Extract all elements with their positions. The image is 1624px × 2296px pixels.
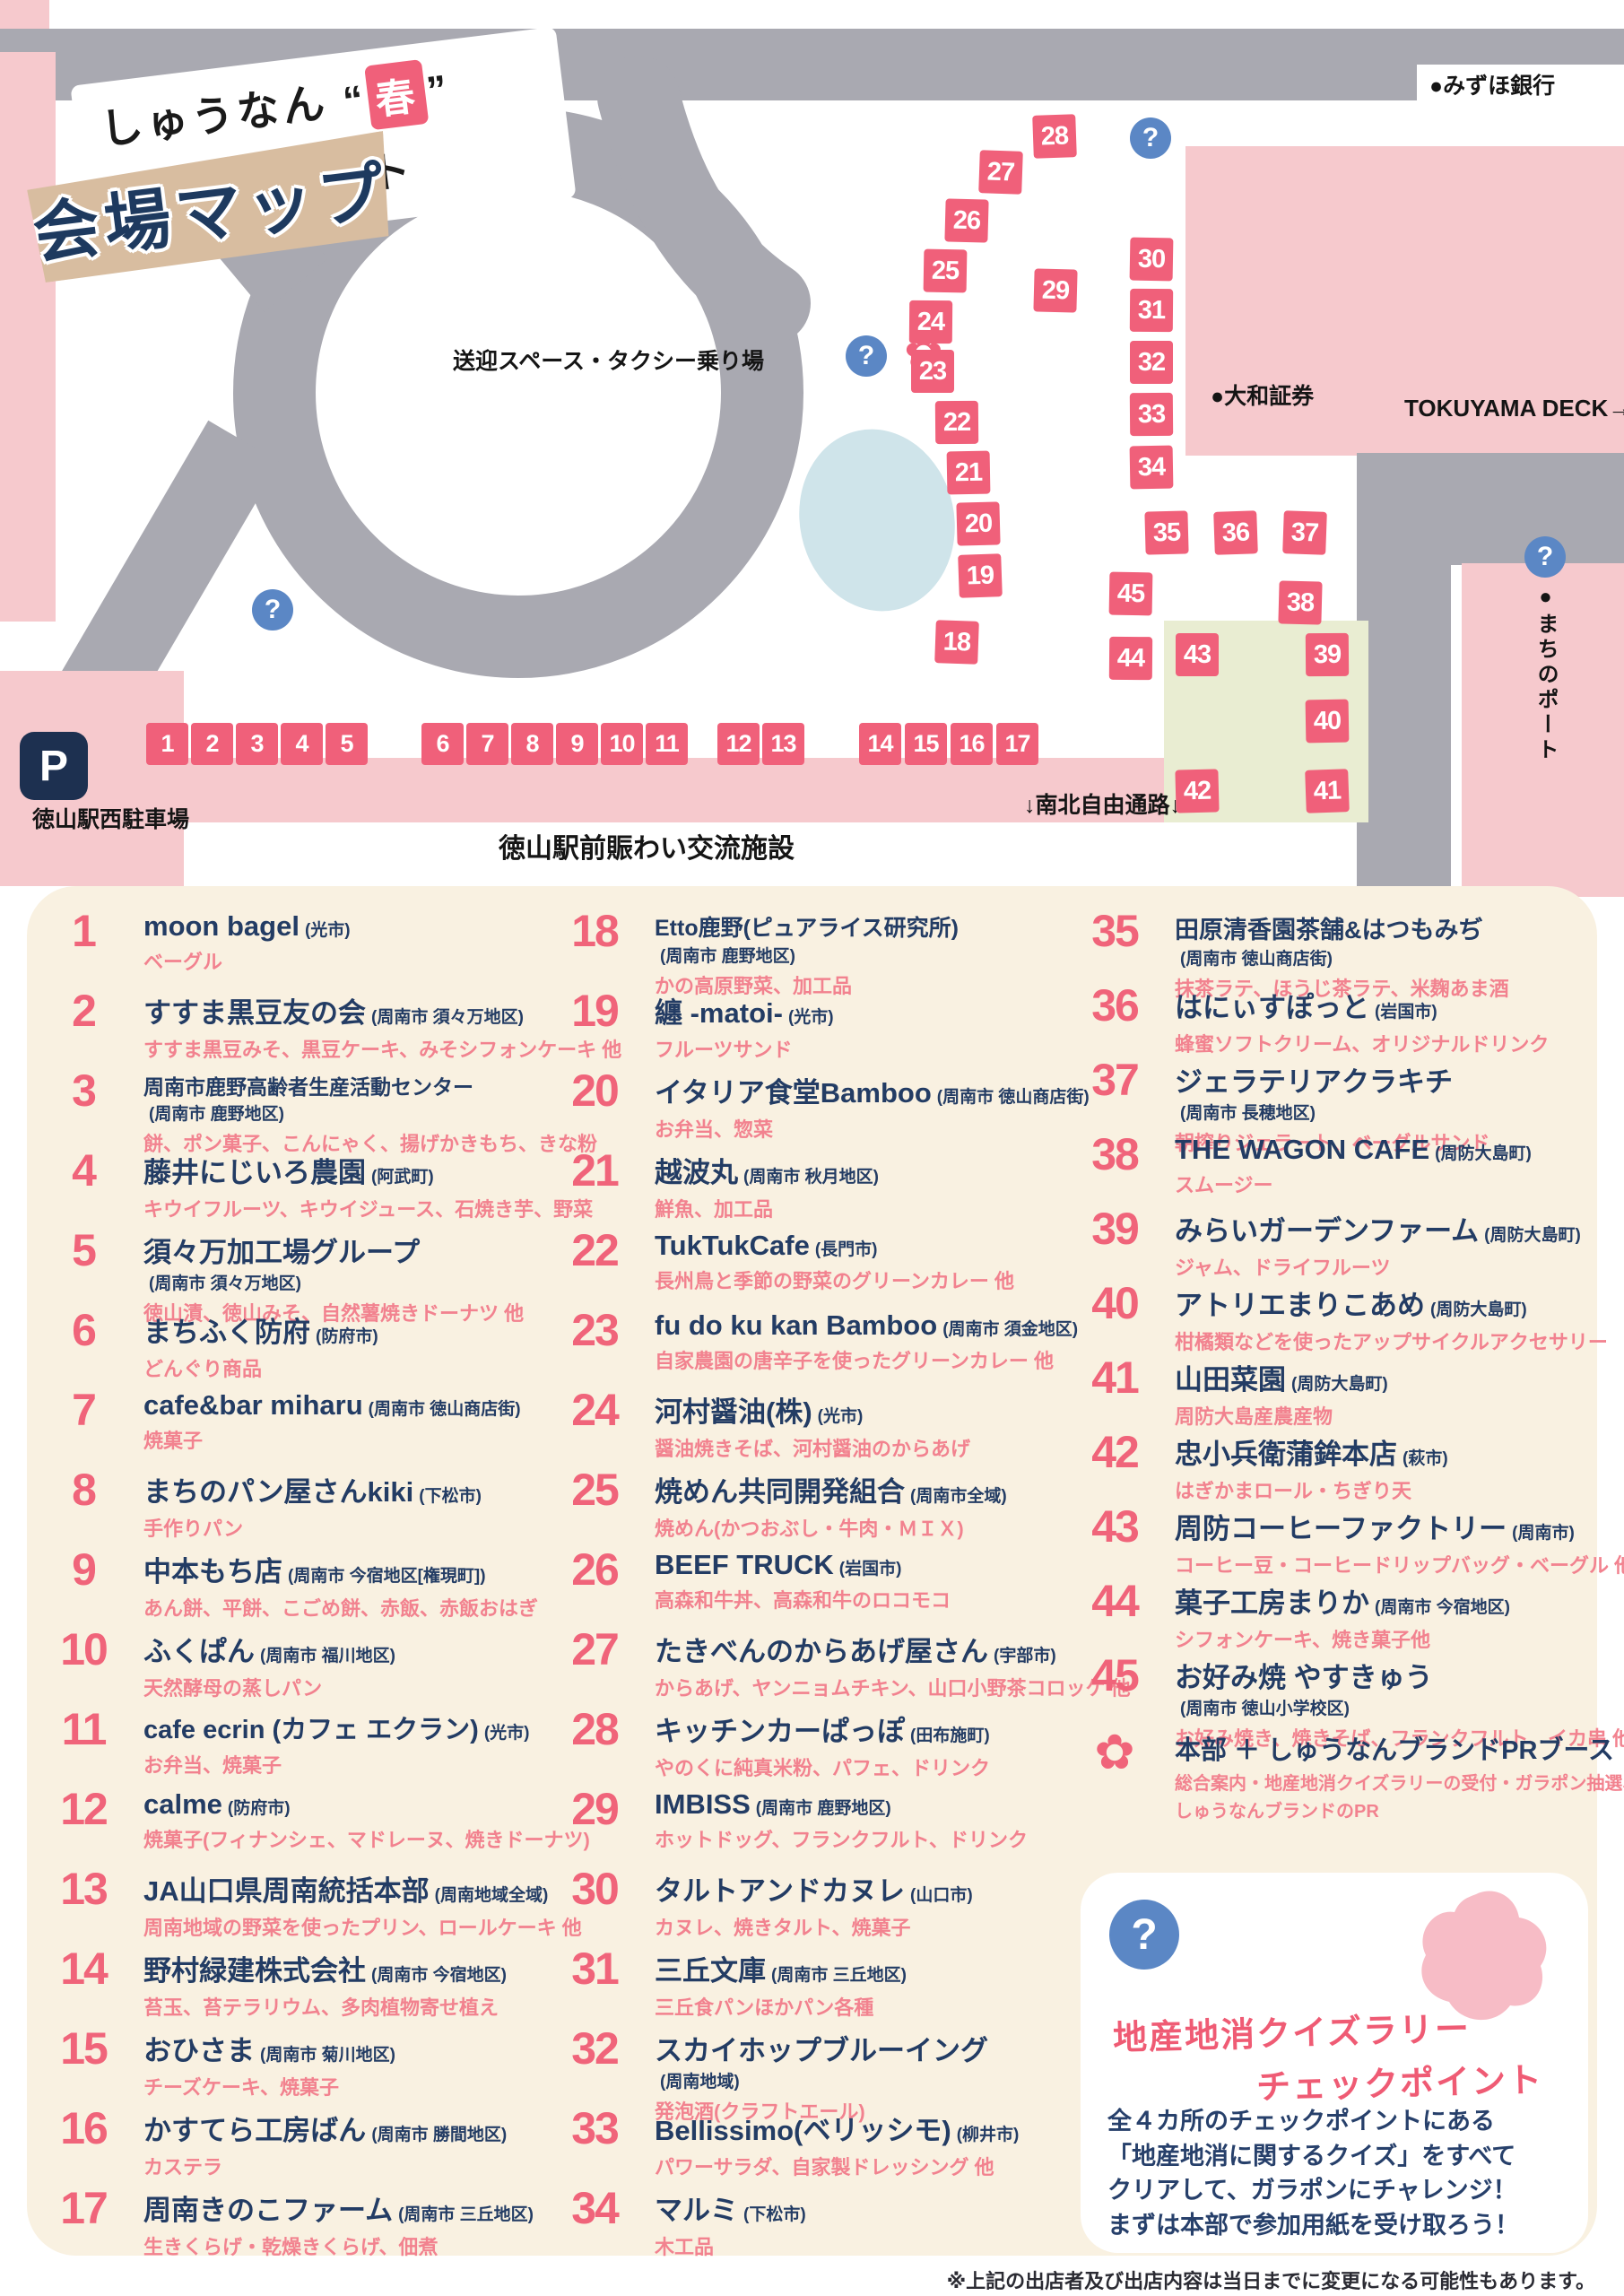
map-badge-44: 44 <box>1109 637 1152 680</box>
vendor-title: スカイホップブルーイング <box>655 2035 988 2066</box>
quiz-body-line: クリアして、ガラポンにチャレンジ！ <box>1107 2173 1519 2208</box>
vendor-number: 6 <box>40 1304 126 1356</box>
title-haru: 春 <box>364 59 429 130</box>
vendor-title: お好み焼 やすきゅう <box>1175 1662 1433 1693</box>
map-badge-30: 30 <box>1130 238 1174 282</box>
vendor-items: シフォンケーキ、焼き菓子他 <box>1175 1624 1592 1653</box>
vendor-entry-24: 24河村醤油(株)(光市)醤油焼きそば、河村醤油のからあげ <box>551 1389 1072 1462</box>
parking-icon: P <box>20 732 88 800</box>
vendor-items: カステラ <box>143 2152 560 2180</box>
vendor-location: (周南市 長穂地区) <box>1180 1104 1316 1123</box>
quote-close: ” <box>424 67 453 114</box>
vendor-location: (周南市 須々万地区) <box>149 1274 301 1293</box>
vendor-title: 山田菜園 <box>1175 1364 1286 1396</box>
vendor-location: (周南市 須々万地区) <box>371 1008 524 1027</box>
vendor-title: おひさま <box>143 2035 255 2066</box>
map-badge-33: 33 <box>1130 393 1173 436</box>
map-badge-22: 22 <box>935 401 978 444</box>
vendor-location: (柳井市) <box>957 2126 1020 2144</box>
booth-badge-6: 6 <box>421 723 464 765</box>
vendor-number: 31 <box>551 1943 638 1995</box>
vendor-title: BEEF TRUCK <box>655 1549 834 1580</box>
map-badge-25: 25 <box>924 249 968 293</box>
vendor-entry-43: 43周防コーヒーファクトリー(周南市)コーヒー豆・コーヒードリップバッグ・ベーグ… <box>1072 1506 1592 1578</box>
vendor-title: JA山口県周南統括本部 <box>143 1875 430 1907</box>
vendor-location: (周南市 三丘地区) <box>398 2205 534 2224</box>
vendor-entry-1: 1moon bagel(光市)ベーグル <box>40 910 560 975</box>
vendor-title: THE WAGON CAFE <box>1175 1134 1429 1165</box>
vendor-entry-2: 2すすま黒豆友の会(周南市 須々万地区)すすま黒豆みそ、黒豆ケーキ、みそシフォン… <box>40 990 560 1063</box>
vendor-entry-17: 17周南きのこファーム(周南市 三丘地区)生きくらげ・乾燥きくらげ、佃煮 <box>40 2187 560 2260</box>
vendor-number: 30 <box>551 1863 638 1915</box>
booth-badge-11: 11 <box>646 723 688 765</box>
map-badge-34: 34 <box>1130 446 1174 490</box>
vendor-items: カヌレ、焼きタルト、焼菓子 <box>655 1912 1072 1941</box>
vendor-number: 21 <box>551 1144 638 1196</box>
booth-badge-8: 8 <box>511 723 553 765</box>
map-badge-42: 42 <box>1175 769 1219 813</box>
vendor-location: (光市) <box>484 1724 530 1743</box>
quiz-body: 全４カ所のチェックポイントにある 「地産地消に関するクイズ」をすべて クリアして… <box>1107 2104 1519 2242</box>
vendor-number: 39 <box>1072 1203 1158 1255</box>
vendor-items: あん餅、平餅、こごめ餅、赤飯、赤飯おはぎ <box>143 1593 560 1622</box>
vendor-items: 総合案内・地産地消クイズラリーの受付・ガラポン抽選、 <box>1175 1769 1592 1795</box>
vendor-items: 焼菓子 <box>143 1425 560 1454</box>
vendor-number: 29 <box>551 1783 638 1835</box>
vendor-location: (周南市 鹿野地区) <box>149 1105 284 1124</box>
booth-badge-16: 16 <box>951 723 993 765</box>
vendor-location: (周南市 徳山商店街) <box>369 1400 521 1419</box>
vendor-entry-14: 14野村緑建株式会社(周南市 今宿地区)苔玉、苔テラリウム、多肉植物寄せ植え <box>40 1948 560 2021</box>
vendor-items: やのくに純真米粉、パフェ、ドリンク <box>655 1752 1072 1781</box>
label-west-parking: 徳山駅西駐車場 <box>32 802 189 834</box>
vendor-title: アトリエまりこあめ <box>1175 1290 1425 1321</box>
vendor-items: スムージー <box>1175 1170 1592 1198</box>
map-badge-19: 19 <box>958 553 1003 598</box>
vendor-items: 蜂蜜ソフトクリーム、オリジナルドリンク <box>1175 1029 1592 1057</box>
vendor-location: (周南市 秋月地区) <box>743 1168 879 1187</box>
booth-badge-12: 12 <box>717 723 760 765</box>
vendor-entry-21: 21越波丸(周南市 秋月地区)鮮魚、加工品 <box>551 1150 1072 1222</box>
vendor-entry-42: 42忠小兵衛蒲鉾本店(萩市)はぎかまロール・ちぎり天 <box>1072 1431 1592 1504</box>
label-machi-port: ●まちのポート <box>1530 585 1561 881</box>
vendor-title: Bellissimo(ベリッシモ) <box>655 2115 951 2146</box>
vendor-title: fu do ku kan Bamboo <box>655 1309 937 1341</box>
vendor-number: 32 <box>551 2022 638 2074</box>
vendor-title: まちふく防府 <box>143 1317 310 1348</box>
vendor-entry-4: 4藤井にじいろ農園(阿武町)キウイフルーツ、キウイジュース、石焼き芋、野菜 <box>40 1150 560 1222</box>
vendor-number: 40 <box>1072 1277 1158 1329</box>
booth-badge-2: 2 <box>191 723 233 765</box>
vendor-items: 高森和牛丼、高森和牛のロコモコ <box>655 1585 1072 1613</box>
vendor-title: 野村緑建株式会社 <box>143 1955 366 1987</box>
vendor-location: (周南市 徳山商店街) <box>1180 950 1333 969</box>
quiz-checkpoint-box: ? 地産地消クイズラリー チェックポイント 全４カ所のチェックポイントにある 「… <box>1081 1873 1588 2253</box>
vendor-location: (周南市 菊川地区) <box>260 2046 395 2065</box>
map-badge-35: 35 <box>1144 510 1188 554</box>
vendor-number: 42 <box>1072 1426 1158 1478</box>
vendor-location: (周南市 三丘地区) <box>771 1966 907 1985</box>
vendor-title: すすま黒豆友の会 <box>143 997 366 1029</box>
vendor-location: (周南地域全域) <box>435 1886 549 1905</box>
vendor-items: チーズケーキ、焼菓子 <box>143 2072 560 2100</box>
vendor-items: ホットドッグ、フランクフルト、ドリンク <box>655 1824 1072 1853</box>
vendor-items: 手作りパン <box>143 1513 560 1542</box>
vendor-entry-28: 28キッチンカーぱっぽ(田布施町)やのくに純真米粉、パフェ、ドリンク <box>551 1709 1072 1781</box>
vendor-items: 鮮魚、加工品 <box>655 1194 1072 1222</box>
label-tokuyama-deck: TOKUYAMA DECK→ <box>1404 395 1624 422</box>
vendor-items: すすま黒豆みそ、黒豆ケーキ、みそシフォンケーキ 他 <box>143 1034 560 1063</box>
vendor-entry-38: 38THE WAGON CAFE(周防大島町)スムージー <box>1072 1134 1592 1198</box>
vendor-items: はぎかまロール・ちぎり天 <box>1175 1475 1592 1504</box>
vendor-title: イタリア食堂Bamboo <box>655 1077 932 1109</box>
vendor-location: (長門市) <box>815 1240 878 1259</box>
vendor-number: 3 <box>40 1065 126 1117</box>
pink-corner <box>0 0 49 32</box>
vendor-entry-7: 7cafe&bar miharu(周南市 徳山商店街)焼菓子 <box>40 1389 560 1454</box>
vendor-location: (周南市 徳山小学校区) <box>1180 1700 1350 1718</box>
booth-badge-4: 4 <box>281 723 323 765</box>
vendor-items: パワーサラダ、自家製ドレッシング 他 <box>655 2152 1072 2180</box>
checkpoint-icon-machiport: ? <box>1524 536 1566 578</box>
quiz-body-line: 「地産地消に関するクイズ」をすべて <box>1107 2139 1519 2174</box>
quiz-body-line: 全４カ所のチェックポイントにある <box>1107 2104 1519 2139</box>
vendor-title: moon bagel <box>143 910 300 942</box>
map-badge-37: 37 <box>1282 510 1327 555</box>
vendor-entry-27: 27たきべんのからあげ屋さん(宇部市)からあげ、ヤンニョムチキン、山口小野茶コロ… <box>551 1629 1072 1701</box>
vendor-number: 9 <box>40 1544 126 1596</box>
vendor-items: 焼めん(かつおぶし・牛肉・ＭＩＸ) <box>655 1513 1072 1542</box>
vendor-location: (周南市 須金地区) <box>942 1320 1078 1339</box>
vendor-location: (周南市 今宿地区) <box>371 1966 507 1985</box>
vendor-number: 11 <box>40 1703 126 1755</box>
map-badge-18: 18 <box>934 620 979 665</box>
vendor-number: 44 <box>1072 1575 1158 1627</box>
vendor-entry-33: 33Bellissimo(ベリッシモ)(柳井市)パワーサラダ、自家製ドレッシング… <box>551 2108 1072 2180</box>
vendor-items: お弁当、焼菓子 <box>143 1750 560 1779</box>
map-badge-27: 27 <box>978 150 1023 195</box>
map-badge-28: 28 <box>1032 114 1077 159</box>
vendor-number: 10 <box>40 1623 126 1675</box>
vendor-location: (周防大島町) <box>1484 1226 1581 1245</box>
vendor-location: (防府市) <box>228 1799 291 1818</box>
vendor-location: (周南市全域) <box>910 1487 1007 1506</box>
vendor-number: 45 <box>1072 1649 1158 1701</box>
vendor-items: キウイフルーツ、キウイジュース、石焼き芋、野菜 <box>143 1194 560 1222</box>
vendor-items: 木工品 <box>655 2231 1072 2260</box>
vendor-number: 16 <box>40 2102 126 2154</box>
label-daiwa-securities: ●大和証券 <box>1211 378 1314 411</box>
vendor-title: まちのパン屋さんkiki <box>143 1476 413 1508</box>
vendor-entry-36: 36はにぃすぽっと(岩国市)蜂蜜ソフトクリーム、オリジナルドリンク <box>1072 985 1592 1057</box>
vendor-entry-6: 6まちふく防府(防府市)どんぐり商品 <box>40 1309 560 1382</box>
label-passage: ↓南北自由通路↓ <box>1024 787 1181 820</box>
vendor-location: (周防大島町) <box>1430 1300 1527 1319</box>
vendor-items: 三丘食パンほかパン各種 <box>655 1992 1072 2021</box>
vendor-items: 焼菓子(フィナンシェ、マドレーヌ、焼きドーナツ) <box>143 1824 560 1853</box>
vendor-title: 三丘文庫 <box>655 1955 766 1987</box>
vendor-number: 33 <box>551 2102 638 2154</box>
vendor-location: (宇部市) <box>994 1647 1056 1665</box>
map-badge-20: 20 <box>956 501 1000 545</box>
vendor-entry-pr-booth: ✿本部 ＋ しゅうなんブランドPRブース総合案内・地産地消クイズラリーの受付・ガ… <box>1072 1729 1592 1822</box>
booth-badge-10: 10 <box>601 723 643 765</box>
booth-badge-14: 14 <box>859 723 901 765</box>
vendor-number: 8 <box>40 1464 126 1516</box>
vendor-entry-26: 26BEEF TRUCK(岩国市)高森和牛丼、高森和牛のロコモコ <box>551 1549 1072 1613</box>
vendor-entry-19: 19纏 -matoi-(光市)フルーツサンド <box>551 990 1072 1063</box>
vendor-location: (周南市 徳山商店街) <box>937 1088 1090 1107</box>
vendor-location: (周南市 鹿野地区) <box>756 1799 891 1818</box>
vendor-title: たきべんのからあげ屋さん <box>655 1636 988 1667</box>
quote-open: “ <box>341 77 369 124</box>
vendor-number: 41 <box>1072 1352 1158 1404</box>
vendor-number: 24 <box>551 1384 638 1436</box>
vendor-entry-44: 44菓子工房まりか(周南市 今宿地区)シフォンケーキ、焼き菓子他 <box>1072 1580 1592 1653</box>
booth-badge-15: 15 <box>905 723 947 765</box>
vendor-entry-30: 30タルトアンドカヌレ(山口市)カヌレ、焼きタルト、焼菓子 <box>551 1868 1072 1941</box>
vendor-number: 5 <box>40 1224 126 1276</box>
map-badge-29: 29 <box>1033 268 1077 312</box>
vendor-entry-40: 40アトリエまりこあめ(周防大島町)柑橘類などを使ったアップサイクルアクセサリー <box>1072 1283 1592 1355</box>
vendor-items: 自家農園の唐辛子を使ったグリーンカレー 他 <box>655 1345 1072 1374</box>
vendor-entry-8: 8まちのパン屋さんkiki(下松市)手作りパン <box>40 1469 560 1542</box>
vendor-number: 13 <box>40 1863 126 1915</box>
vendor-title: 纏 -matoi- <box>655 997 783 1029</box>
footer-disclaimer: ※上記の出店者及び出店内容は当日までに変更になる可能性もあります。 <box>947 2266 1595 2294</box>
vendor-items: 天然酵母の蒸しパン <box>143 1673 560 1701</box>
booth-badge-13: 13 <box>762 723 804 765</box>
vendor-location: (萩市) <box>1403 1449 1448 1468</box>
vendor-entry-39: 39みらいガーデンファーム(周防大島町)ジャム、ドライフルーツ <box>1072 1208 1592 1281</box>
booth-badge-7: 7 <box>466 723 508 765</box>
vendor-location: (防府市) <box>316 1327 378 1346</box>
vendor-title: calme <box>143 1788 222 1820</box>
label-station-facility: 徳山駅前賑わい交流施設 <box>499 826 795 865</box>
vendor-title: かすてら工房ばん <box>143 2115 366 2146</box>
vendor-location: (周南市 勝間地区) <box>371 2126 507 2144</box>
map-badge-26: 26 <box>944 198 988 242</box>
vendor-title: 藤井にじいろ農園 <box>143 1157 366 1188</box>
vendor-title: 周南市鹿野高齢者生産活動センター <box>143 1075 473 1099</box>
vendor-entry-34: 34マルミ(下松市)木工品 <box>551 2187 1072 2260</box>
vendor-location: (阿武町) <box>371 1168 434 1187</box>
vendor-title: みらいガーデンファーム <box>1175 1215 1479 1247</box>
vendor-entry-22: 22TukTukCafe(長門市)長州鳥と季節の野菜のグリーンカレー 他 <box>551 1230 1072 1294</box>
vendor-location: (田布施町) <box>910 1726 990 1745</box>
quiz-body-line: まずは本部で参加用紙を受け取ろう！ <box>1107 2208 1519 2243</box>
vendor-number: 18 <box>551 905 638 957</box>
vendor-title: ふくぱん <box>143 1636 255 1667</box>
vendor-location: (周南市 今宿地区) <box>1375 1598 1510 1617</box>
vendor-title: cafe ecrin (カフェ エクラン) <box>143 1716 479 1744</box>
road-right-vertical <box>1357 453 1451 897</box>
vendor-location: (周南市) <box>1512 1524 1575 1543</box>
vendor-title: 須々万加工場グループ <box>143 1237 420 1268</box>
map-badge-43: 43 <box>1176 633 1219 676</box>
vendor-number: 12 <box>40 1783 126 1835</box>
vendor-items: からあげ、ヤンニョムチキン、山口小野茶コロッケ 他 <box>655 1673 1072 1701</box>
map-badge-38: 38 <box>1278 580 1322 624</box>
vendor-title: TukTukCafe <box>655 1230 810 1261</box>
quiz-title-line1: 地産地消クイズラリー <box>1112 2001 1471 2059</box>
vendor-number: 17 <box>40 2182 126 2234</box>
vendor-location: (周南市 鹿野地区) <box>660 947 795 966</box>
map-badge-45: 45 <box>1109 572 1153 616</box>
vendor-entry-16: 16かすてら工房ばん(周南市 勝間地区)カステラ <box>40 2108 560 2180</box>
vendor-location: (周防大島町) <box>1291 1375 1388 1394</box>
vendor-title: 越波丸 <box>655 1157 738 1188</box>
vendor-title: キッチンカーぱっぽ <box>655 1716 905 1747</box>
vendor-items: お弁当、惣菜 <box>655 1114 1072 1143</box>
vendor-number: 14 <box>40 1943 126 1995</box>
map-badge-31: 31 <box>1130 289 1173 332</box>
vendor-location: (光市) <box>818 1407 864 1426</box>
vendor-number: 19 <box>551 985 638 1037</box>
vendor-title: ジェラテリアクラキチ <box>1175 1066 1453 1098</box>
vendor-number: 25 <box>551 1464 638 1516</box>
pr-flower-icon: ✿ <box>1072 1724 1158 1780</box>
checkpoint-icon-north: ? <box>1130 117 1171 159</box>
vendor-location: (光市) <box>305 921 351 940</box>
booth-badge-5: 5 <box>326 723 368 765</box>
map-badge-36: 36 <box>1213 510 1258 555</box>
vendor-entry-13: 13JA山口県周南統括本部(周南地域全域)周南地域の野菜を使ったプリン、ロールケ… <box>40 1868 560 1941</box>
vendor-number: 35 <box>1072 905 1158 957</box>
vendor-location: (下松市) <box>419 1487 482 1506</box>
label-taxi-area: 送迎スペース・タクシー乗り場 <box>453 344 764 376</box>
vendor-number: 2 <box>40 985 126 1037</box>
question-icon: ? <box>1109 1900 1179 1970</box>
vendor-number: 34 <box>551 2182 638 2234</box>
vendor-title: cafe&bar miharu <box>143 1389 363 1421</box>
vendor-title: 中本もち店 <box>143 1556 282 1587</box>
label-mizuho-bank: ●みずほ銀行 <box>1429 68 1555 100</box>
pink-strip-left <box>0 52 56 622</box>
vendor-title: 河村醤油(株) <box>655 1396 812 1428</box>
map-badge-21: 21 <box>947 451 991 495</box>
vendor-number: 28 <box>551 1703 638 1755</box>
vendor-number: 27 <box>551 1623 638 1675</box>
map-badge-32: 32 <box>1130 341 1173 384</box>
checkpoint-icon-west: ? <box>252 589 293 631</box>
vendor-items: 苔玉、苔テラリウム、多肉植物寄せ植え <box>143 1992 560 2021</box>
vendor-number: 23 <box>551 1304 638 1356</box>
vendor-location: (下松市) <box>743 2205 806 2224</box>
vendor-title: 周防コーヒーファクトリー <box>1175 1513 1507 1544</box>
vendor-title: 忠小兵衛蒲鉾本店 <box>1175 1439 1397 1470</box>
pond <box>783 414 972 625</box>
vendor-items: 長州鳥と季節の野菜のグリーンカレー 他 <box>655 1265 1072 1294</box>
vendor-entry-10: 10ふくぱん(周南市 福川地区)天然酵母の蒸しパン <box>40 1629 560 1701</box>
vendor-title: 菓子工房まりか <box>1175 1587 1369 1619</box>
vendor-location: (周南市 今宿地区[権現町]) <box>288 1567 486 1586</box>
vendor-items: ジャム、ドライフルーツ <box>1175 1252 1592 1281</box>
vendor-title: Etto鹿野(ピュアライス研究所) <box>655 916 959 941</box>
vendor-items: ベーグル <box>143 946 560 975</box>
vendor-title: 焼めん共同開発組合 <box>655 1476 905 1508</box>
vendor-title: マルミ <box>655 2195 738 2226</box>
vendor-items: どんぐり商品 <box>143 1353 560 1382</box>
vendor-title: 本部 ＋ しゅうなんブランドPRブース <box>1175 1736 1614 1765</box>
vendor-items: しゅうなんブランドのPR <box>1175 1796 1592 1822</box>
vendor-number: 7 <box>40 1384 126 1436</box>
booth-badge-9: 9 <box>556 723 598 765</box>
quiz-title-line2: チェックポイント <box>1255 2052 1543 2109</box>
map-badge-41: 41 <box>1305 769 1350 813</box>
vendor-entry-9: 9中本もち店(周南市 今宿地区[権現町])あん餅、平餅、こごめ餅、赤飯、赤飯おは… <box>40 1549 560 1622</box>
vendor-number: 26 <box>551 1544 638 1596</box>
vendor-items: 柑橘類などを使ったアップサイクルアクセサリー <box>1175 1326 1592 1355</box>
booth-badge-3: 3 <box>236 723 278 765</box>
vendor-location: (光市) <box>788 1008 834 1027</box>
vendor-items: コーヒー豆・コーヒードリップバッグ・ベーグル 他 <box>1175 1550 1592 1578</box>
vendor-number: 20 <box>551 1065 638 1117</box>
vendor-title: 周南きのこファーム <box>143 2195 393 2226</box>
vendor-entry-20: 20イタリア食堂Bamboo(周南市 徳山商店街)お弁当、惣菜 <box>551 1070 1072 1143</box>
vendor-number: 1 <box>40 905 126 957</box>
map-badge-39: 39 <box>1306 633 1349 676</box>
vendor-items: 周防大島産農産物 <box>1175 1401 1592 1430</box>
vendor-items: 生きくらげ・乾燥きくらげ、佃煮 <box>143 2231 560 2260</box>
vendor-entry-31: 31三丘文庫(周南市 三丘地区)三丘食パンほかパン各種 <box>551 1948 1072 2021</box>
vendor-number: 15 <box>40 2022 126 2074</box>
vendor-location: (岩国市) <box>1375 1003 1437 1022</box>
vendor-number: 22 <box>551 1224 638 1276</box>
road-top-right <box>1417 29 1624 65</box>
vendor-location: (山口市) <box>910 1886 973 1905</box>
vendor-title: IMBISS <box>655 1788 751 1820</box>
vendor-entry-15: 15おひさま(周南市 菊川地区)チーズケーキ、焼菓子 <box>40 2028 560 2100</box>
vendor-location: (周南地域) <box>660 2073 740 2092</box>
booth-badge-1: 1 <box>146 723 188 765</box>
vendor-location: (岩国市) <box>839 1560 902 1578</box>
vendor-location: (周南市 福川地区) <box>260 1647 395 1665</box>
vendor-items: フルーツサンド <box>655 1034 1072 1063</box>
vendor-number: 36 <box>1072 979 1158 1031</box>
vendor-title: タルトアンドカヌレ <box>655 1875 905 1907</box>
road-descender <box>638 97 769 303</box>
map-badge-40: 40 <box>1306 700 1350 744</box>
vendor-entry-25: 25焼めん共同開発組合(周南市全域)焼めん(かつおぶし・牛肉・ＭＩＸ) <box>551 1469 1072 1542</box>
vendor-items: 醤油焼きそば、河村醤油のからあげ <box>655 1433 1072 1462</box>
map-badge-24: 24 <box>909 300 952 344</box>
vendor-items: 周南地域の野菜を使ったプリン、ロールケーキ 他 <box>143 1912 560 1941</box>
vendor-number: 38 <box>1072 1128 1158 1180</box>
booth-badge-17: 17 <box>996 723 1038 765</box>
vendor-entry-11: 11cafe ecrin (カフェ エクラン)(光市)お弁当、焼菓子 <box>40 1709 560 1779</box>
map-badge-23: 23 <box>911 350 954 393</box>
event-poster: { "title": { "line1_black": "しゅうなん", "qu… <box>0 0 1624 2296</box>
vendor-location: (周防大島町) <box>1435 1144 1532 1163</box>
vendor-number: 4 <box>40 1144 126 1196</box>
vendor-number: 37 <box>1072 1054 1158 1106</box>
vendor-entry-41: 41山田菜園(周防大島町)周防大島産農産物 <box>1072 1357 1592 1430</box>
vendor-entry-29: 29IMBISS(周南市 鹿野地区)ホットドッグ、フランクフルト、ドリンク <box>551 1788 1072 1853</box>
vendor-entry-12: 12calme(防府市)焼菓子(フィナンシェ、マドレーヌ、焼きドーナツ) <box>40 1788 560 1853</box>
vendor-title: はにぃすぽっと <box>1175 992 1369 1023</box>
checkpoint-icon-center: ? <box>846 335 887 377</box>
vendor-title: 田原清香園茶舗&はつもみぢ <box>1175 917 1483 944</box>
vendor-number: 43 <box>1072 1500 1158 1552</box>
vendor-entry-23: 23fu do ku kan Bamboo(周南市 須金地区)自家農園の唐辛子を… <box>551 1309 1072 1374</box>
